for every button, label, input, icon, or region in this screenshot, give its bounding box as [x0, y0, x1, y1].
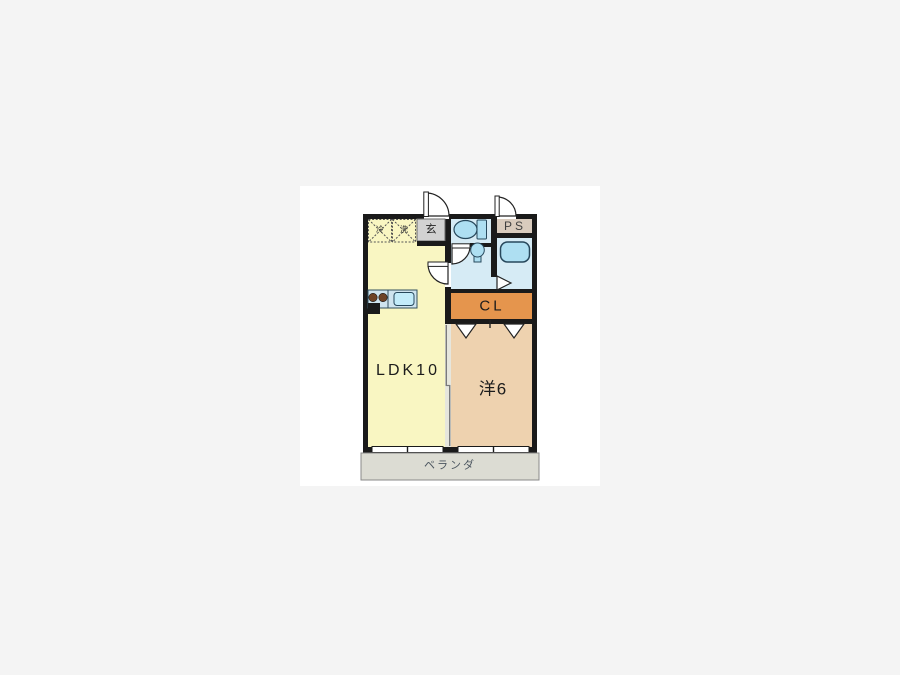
floorplan-image: LDK10 洋6 CL PS 玄 ベランダ 冷 洗 [300, 186, 600, 486]
page-background: LDK10 洋6 CL PS 玄 ベランダ 冷 洗 [0, 0, 900, 675]
ldk-label: LDK10 [376, 363, 440, 379]
washer-space-label: 洗 [400, 226, 408, 234]
entrance-door-icon [424, 192, 449, 217]
toilet-icon [454, 220, 487, 239]
burner-icon [379, 293, 387, 301]
fridge-space-label: 冷 [376, 226, 384, 234]
entrance-wall [417, 241, 451, 246]
closet-label: CL [479, 299, 504, 314]
burner-icon [369, 293, 377, 301]
western-room-label: 洋6 [479, 381, 507, 398]
western-window-icon [458, 447, 529, 453]
ps-door-icon [495, 196, 516, 217]
entrance-label: 玄 [426, 225, 437, 236]
bathtub-icon [501, 242, 530, 262]
floorplan-graphic [300, 186, 600, 486]
balcony-label: ベランダ [424, 461, 476, 472]
bath-door-opening [491, 277, 497, 289]
sliding-door [445, 324, 451, 447]
counter-wall-stub [368, 303, 380, 314]
kitchen-sink-icon [394, 293, 414, 306]
pipe-space-label: PS [504, 220, 526, 232]
ldk-window-icon [372, 447, 443, 453]
ldk-room [368, 219, 445, 447]
